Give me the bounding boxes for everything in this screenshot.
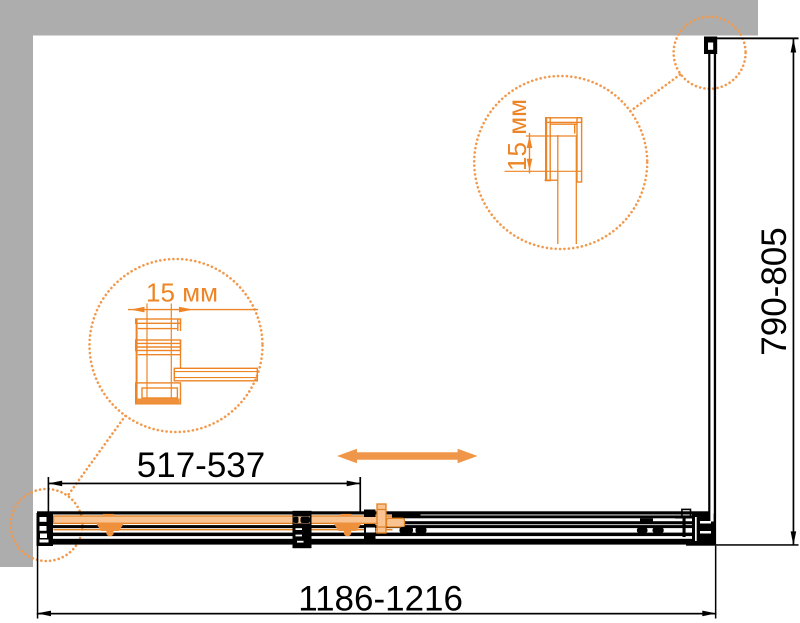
svg-text:790-805: 790-805	[755, 227, 794, 355]
svg-text:15 мм: 15 мм	[502, 99, 532, 171]
svg-text:15 мм: 15 мм	[146, 278, 218, 308]
svg-text:1186-1216: 1186-1216	[298, 579, 463, 618]
svg-text:517-537: 517-537	[137, 446, 265, 485]
